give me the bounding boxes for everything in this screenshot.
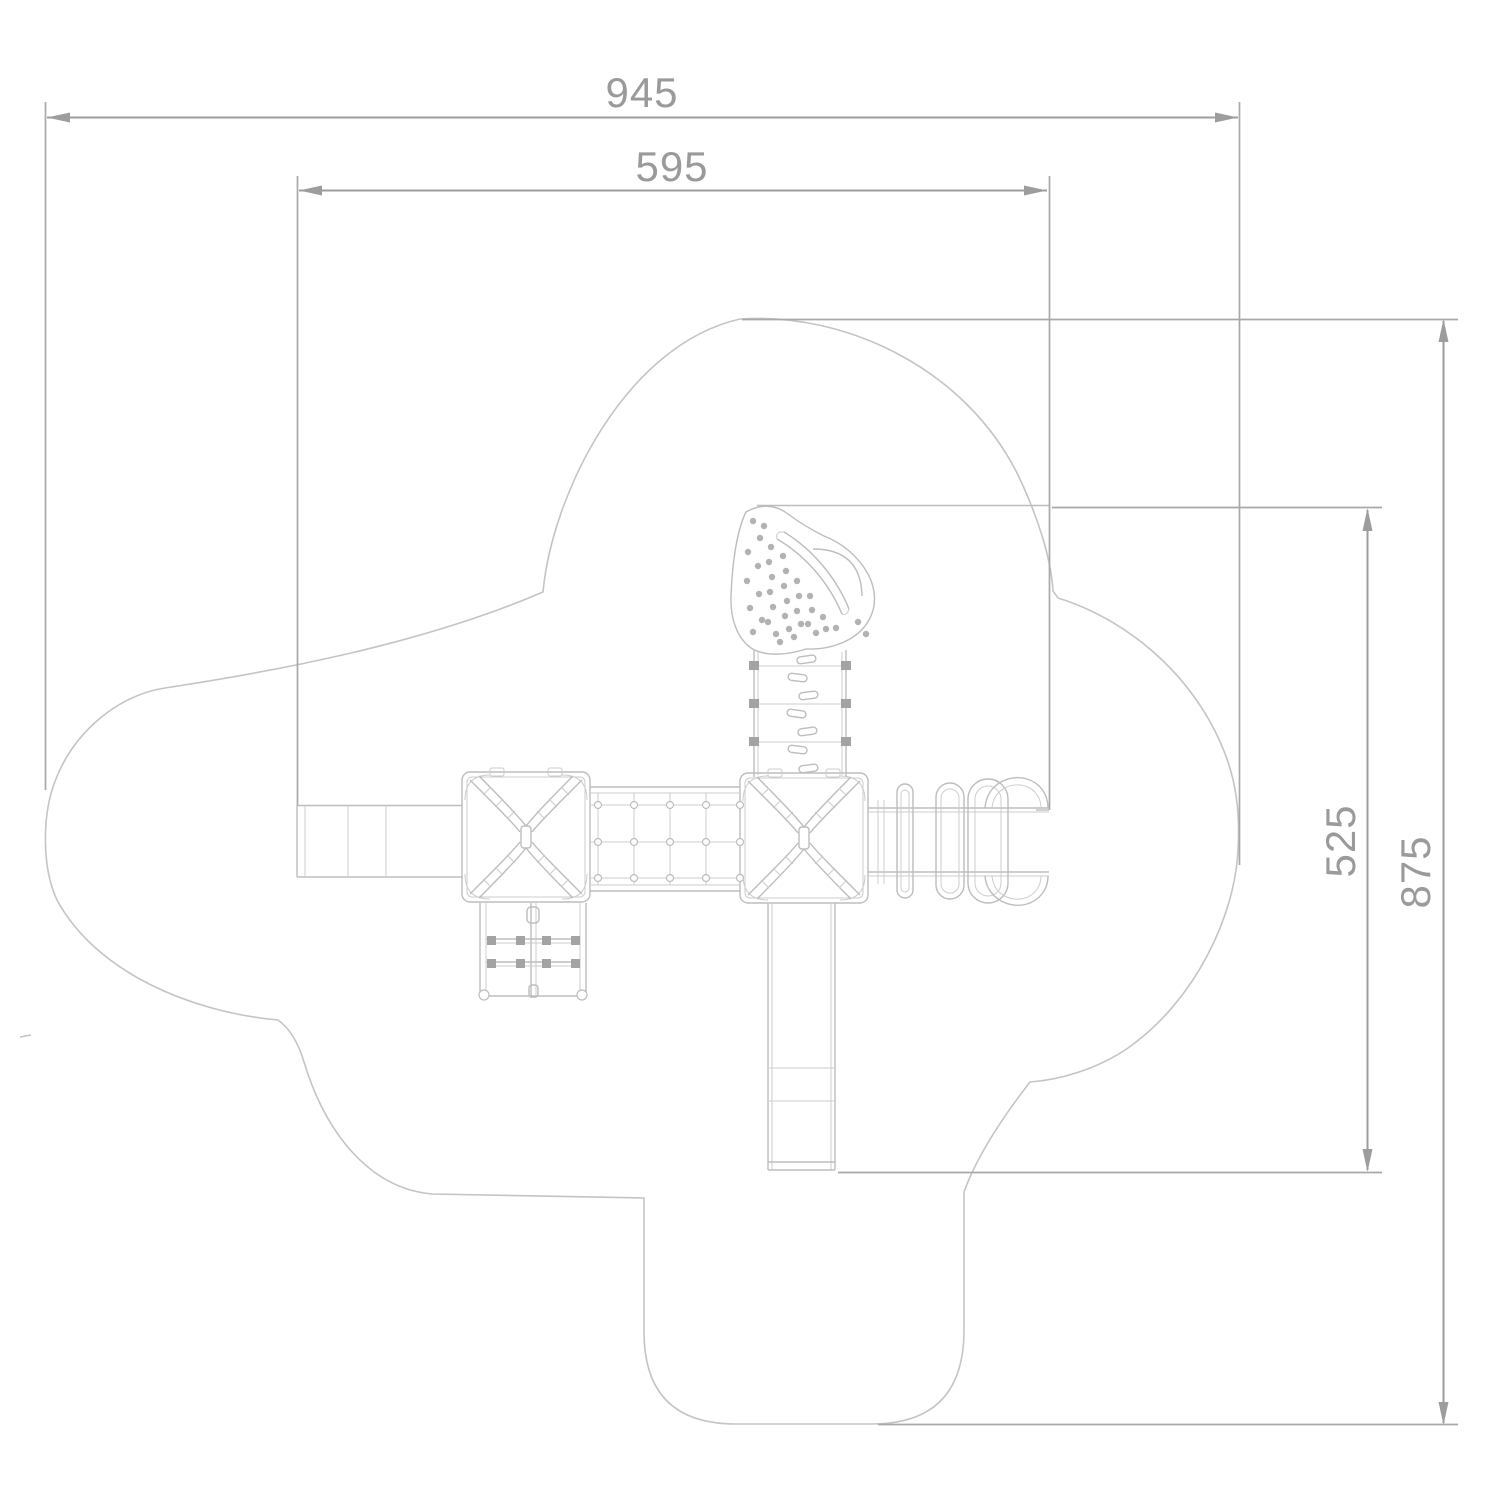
- safety-zone-outline: [20, 318, 1239, 1424]
- slide-bottom: [768, 903, 835, 1170]
- dimension-label-inner-height: 525: [1317, 804, 1365, 877]
- tower-right: [740, 769, 868, 903]
- plan-drawing-canvas: [0, 0, 1500, 1500]
- dimension-label-platform-width: 595: [635, 143, 708, 191]
- upper-platform-deck: [757, 506, 1049, 811]
- technical-drawing-playground-plan: 945 595 525 875: [0, 0, 1500, 1500]
- dimension-label-total-height: 875: [1392, 835, 1440, 908]
- spiral-climber: [868, 778, 1049, 906]
- dimension-label-total-width: 945: [605, 69, 678, 117]
- climbing-wall: [731, 506, 875, 654]
- slide-left: [297, 805, 462, 877]
- climbing-ladder: [749, 650, 851, 777]
- extension-lines: [46, 102, 1459, 1425]
- climbing-holds: [744, 518, 869, 645]
- access-stairs: [479, 903, 587, 1000]
- tower-left: [462, 768, 590, 902]
- net-bridge: [590, 787, 744, 891]
- stray-tick-mark: [20, 1035, 31, 1037]
- dimension-875-total-height: [1439, 319, 1449, 1425]
- ladder-rungs: [787, 655, 819, 773]
